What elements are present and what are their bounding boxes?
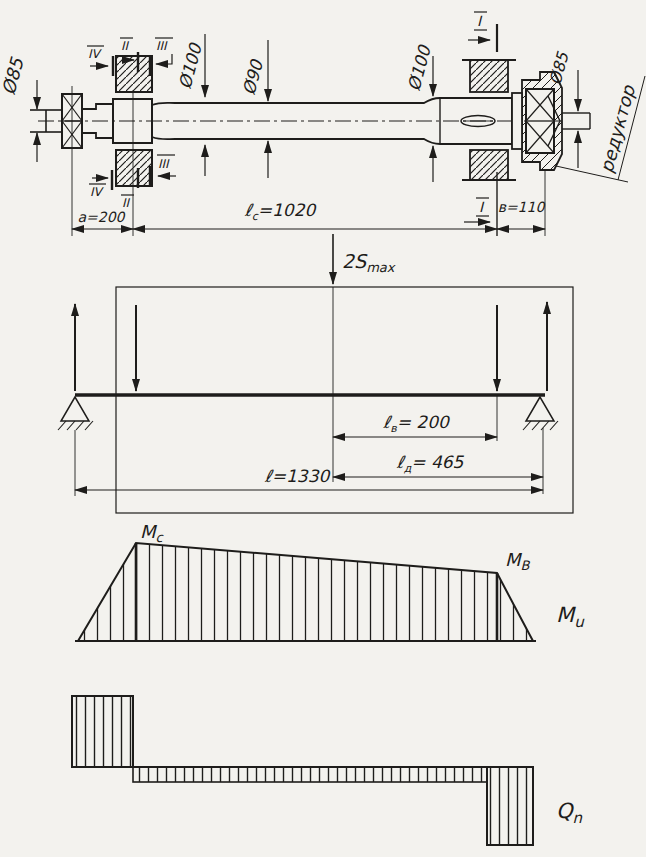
housing-walls [462, 60, 516, 180]
reducer-label: редуктор [596, 82, 640, 175]
dim-b-label: в=110 [498, 199, 546, 215]
force-label: 2Smax [342, 250, 396, 275]
beam-loading-scheme: 2Smax ℓв= 200 ℓд= 465 [58, 234, 573, 513]
phi90-label: Ø90 [239, 56, 268, 97]
phi100-right-label: Ø100 [404, 41, 436, 93]
dim-phi85-left: Ø85 [0, 54, 37, 162]
hub-section-bottom [116, 150, 152, 186]
moment-mb-label: MB [505, 549, 531, 573]
moment-mc-label: Mc [140, 521, 165, 545]
phi85-right-label: Ø85 [546, 49, 573, 87]
dim-phi90: Ø90 [239, 40, 268, 178]
shear-strip-negative [133, 767, 487, 782]
dim-l-label: ℓ=1330 [264, 466, 332, 486]
moment-area [78, 543, 533, 641]
shear-block-negative [487, 767, 533, 845]
section-ii-top-label: II [121, 39, 130, 53]
dim-phi100-right: Ø100 [404, 41, 436, 182]
scanned-drawing-page: Ø85 IV [0, 0, 646, 857]
section-iv-top-label: IV [88, 47, 103, 61]
shear-block-positive [72, 696, 133, 767]
technical-drawing: Ø85 IV [0, 0, 646, 857]
dim-a-label: a=200 [77, 209, 125, 225]
hub-section-top [116, 56, 152, 92]
length-dimensions: a=200 ℓc=1020 в=110 [72, 199, 545, 229]
section-ii-bottom-label: II [122, 196, 131, 210]
support-left [58, 397, 93, 430]
moment-axis-label: Mu [556, 603, 585, 631]
dim-lv-label: ℓв= 200 [382, 412, 451, 435]
keyway-slot [461, 116, 495, 127]
section-i-bottom-label: I [479, 199, 485, 215]
shaft-drawing: Ø85 IV [0, 12, 645, 236]
phi100-left-label: Ø100 [175, 39, 207, 91]
housing-wall-top [470, 60, 508, 92]
bending-moment-diagram: Mc MB Mu [75, 521, 585, 641]
shear-axis-label: Qn [556, 799, 583, 827]
housing-wall-bottom [470, 150, 508, 180]
support-right [523, 397, 558, 430]
section-iv-bottom-label: IV [90, 185, 105, 199]
beam-dimensions: ℓв= 200 ℓд= 465 ℓ=1330 [75, 412, 543, 490]
phi85-left-label: Ø85 [0, 54, 28, 97]
section-iii-top-label: III [156, 39, 168, 53]
shear-force-diagram: Qn [72, 696, 583, 845]
section-i-top-label: I [477, 13, 483, 29]
scheme-frame [116, 287, 573, 513]
dim-phi100-left: Ø100 [175, 34, 207, 176]
dim-lc-label: ℓc=1020 [244, 200, 318, 223]
spacer-ring [512, 93, 522, 149]
dim-ld-label: ℓд= 465 [396, 452, 465, 475]
section-iii-bottom-label: III [158, 157, 170, 171]
